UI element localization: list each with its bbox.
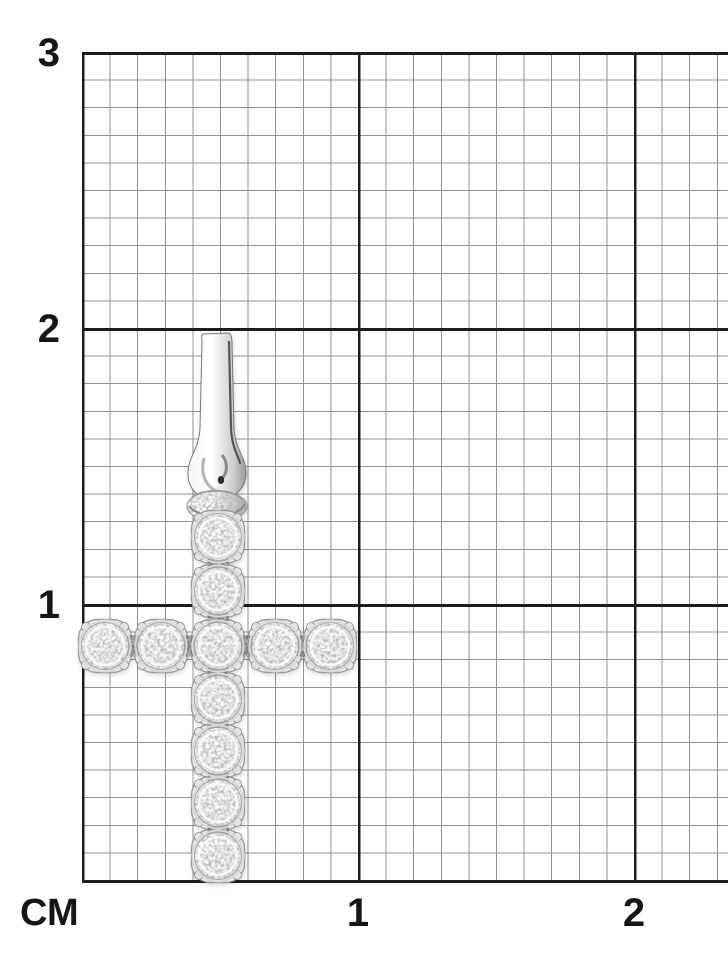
pendant-svg bbox=[0, 0, 728, 970]
bail-hole-icon bbox=[218, 476, 224, 484]
diamond-stone bbox=[193, 674, 244, 725]
diamond-stone bbox=[193, 726, 244, 777]
diamond-stone bbox=[193, 512, 244, 563]
diamond-stone bbox=[136, 621, 187, 672]
diamond-stone bbox=[305, 621, 356, 672]
diamond-cross-pendant bbox=[79, 333, 357, 883]
diamond-stone bbox=[193, 778, 244, 829]
diamond-stone bbox=[80, 621, 131, 672]
pendant-layer bbox=[0, 0, 728, 970]
diamond-stone bbox=[193, 621, 244, 672]
diamond-stone bbox=[193, 566, 244, 617]
diamond-stone bbox=[250, 621, 301, 672]
bail bbox=[187, 333, 247, 521]
product-photo: 32112 СМ bbox=[0, 0, 728, 970]
diamond-stone bbox=[193, 831, 244, 882]
